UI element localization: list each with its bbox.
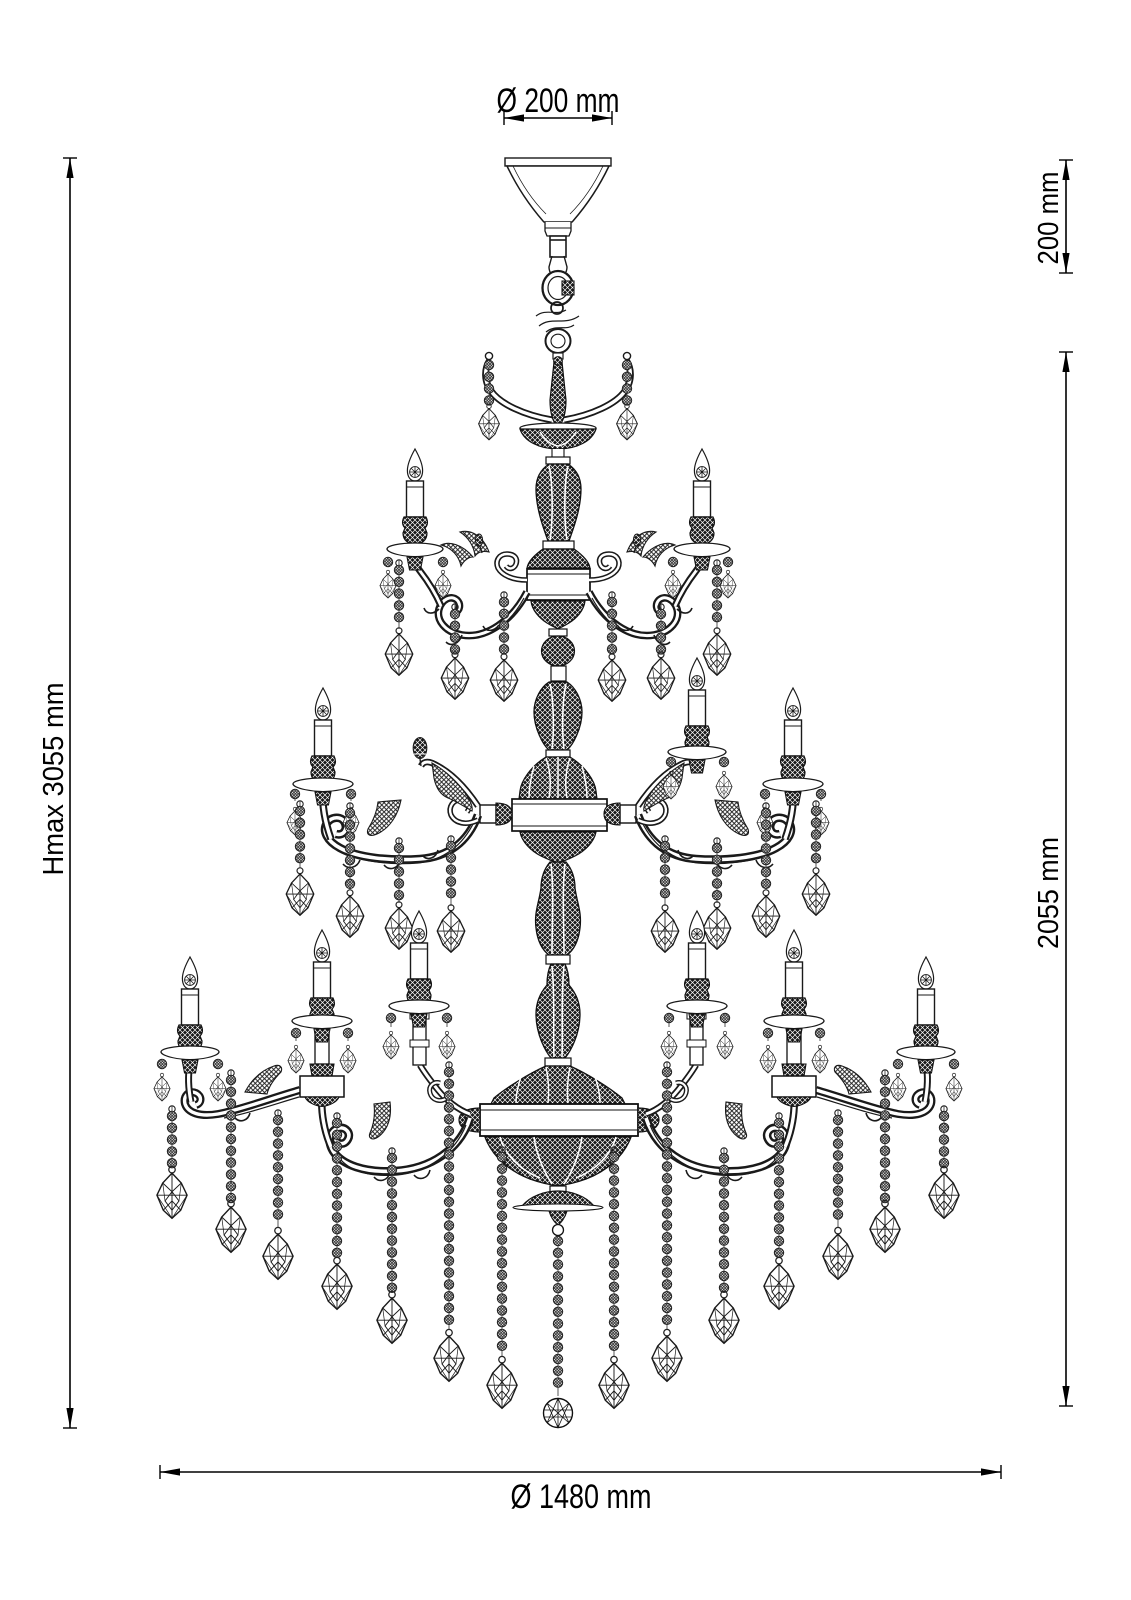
svg-text:Ø 1480 mm: Ø 1480 mm [511, 1478, 652, 1516]
svg-text:2055 mm: 2055 mm [1033, 837, 1065, 949]
svg-text:200 mm: 200 mm [1033, 172, 1065, 265]
svg-text:Ø 200 mm: Ø 200 mm [497, 82, 620, 120]
svg-text:Hmax 3055 mm: Hmax 3055 mm [38, 683, 70, 876]
